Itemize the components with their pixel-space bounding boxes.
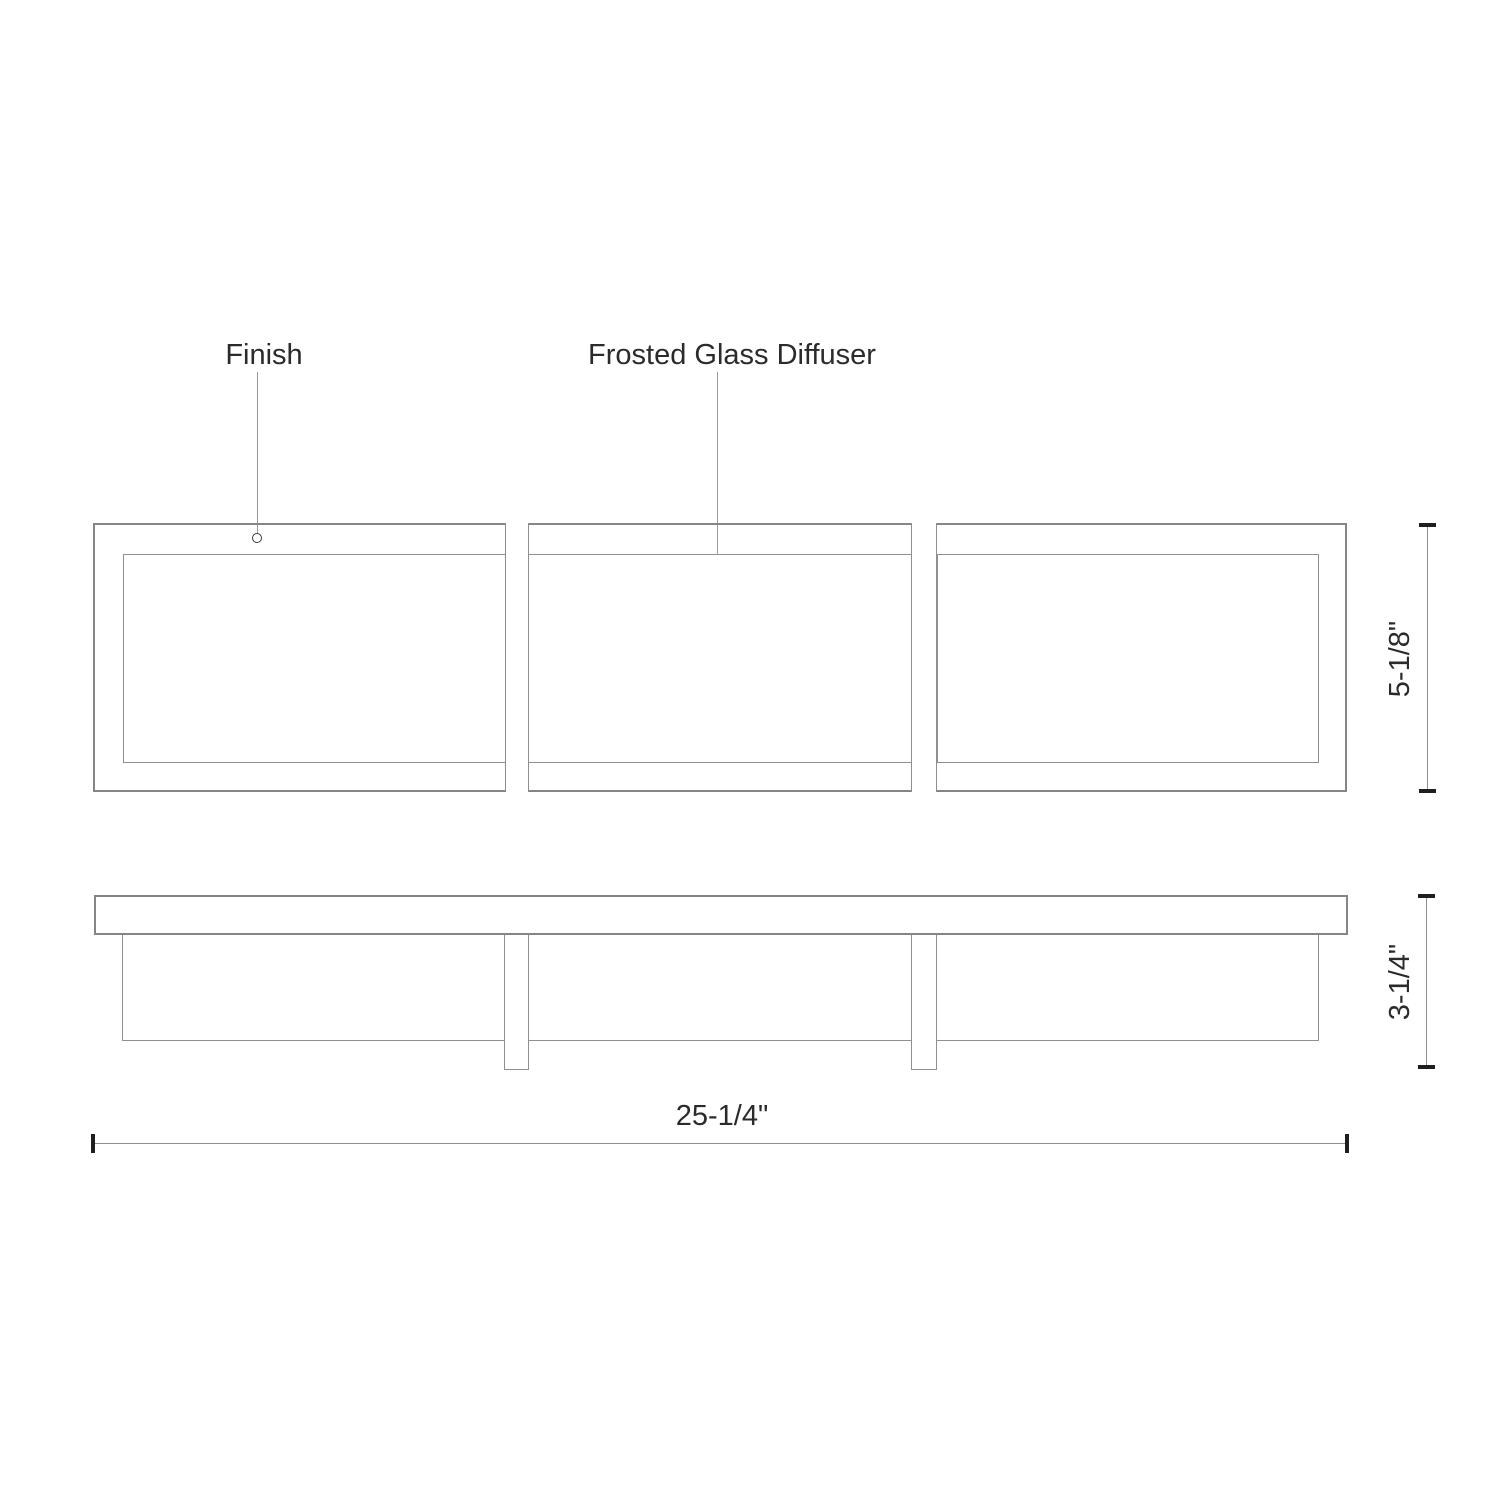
- side-view-divider-tab-right: [911, 935, 937, 1070]
- depth-dimension-line: [1426, 896, 1427, 1068]
- frame-divider-left: [505, 523, 529, 792]
- width-dimension-tick-left: [91, 1134, 95, 1153]
- depth-dimension-tick-top: [1418, 894, 1435, 898]
- height-dimension-label: 5-1/8": [1385, 609, 1415, 709]
- height-dimension-line: [1427, 525, 1428, 792]
- finish-callout-label: Finish: [154, 340, 374, 370]
- glass-panel-center: [528, 554, 912, 763]
- finish-leader-line: [257, 372, 258, 533]
- side-view-canopy-bar: [94, 895, 1348, 935]
- depth-dimension-tick-bottom: [1418, 1065, 1435, 1069]
- side-view-divider-tab-left: [504, 935, 529, 1070]
- width-dimension-tick-right: [1345, 1134, 1349, 1153]
- side-view-body: [122, 935, 1319, 1041]
- height-dimension-tick-top: [1419, 523, 1436, 527]
- glass-panel-left: [123, 554, 506, 763]
- technical-drawing-canvas: Finish Frosted Glass Diffuser 5-1/8" 3-1…: [0, 0, 1500, 1500]
- width-dimension-label: 25-1/4": [622, 1101, 822, 1131]
- depth-dimension-label: 3-1/4": [1385, 932, 1415, 1032]
- glass-panel-right: [937, 554, 1319, 763]
- diffuser-callout-label: Frosted Glass Diffuser: [552, 340, 912, 370]
- frame-divider-right: [911, 523, 937, 792]
- height-dimension-tick-bottom: [1419, 789, 1436, 793]
- width-dimension-line: [93, 1143, 1347, 1144]
